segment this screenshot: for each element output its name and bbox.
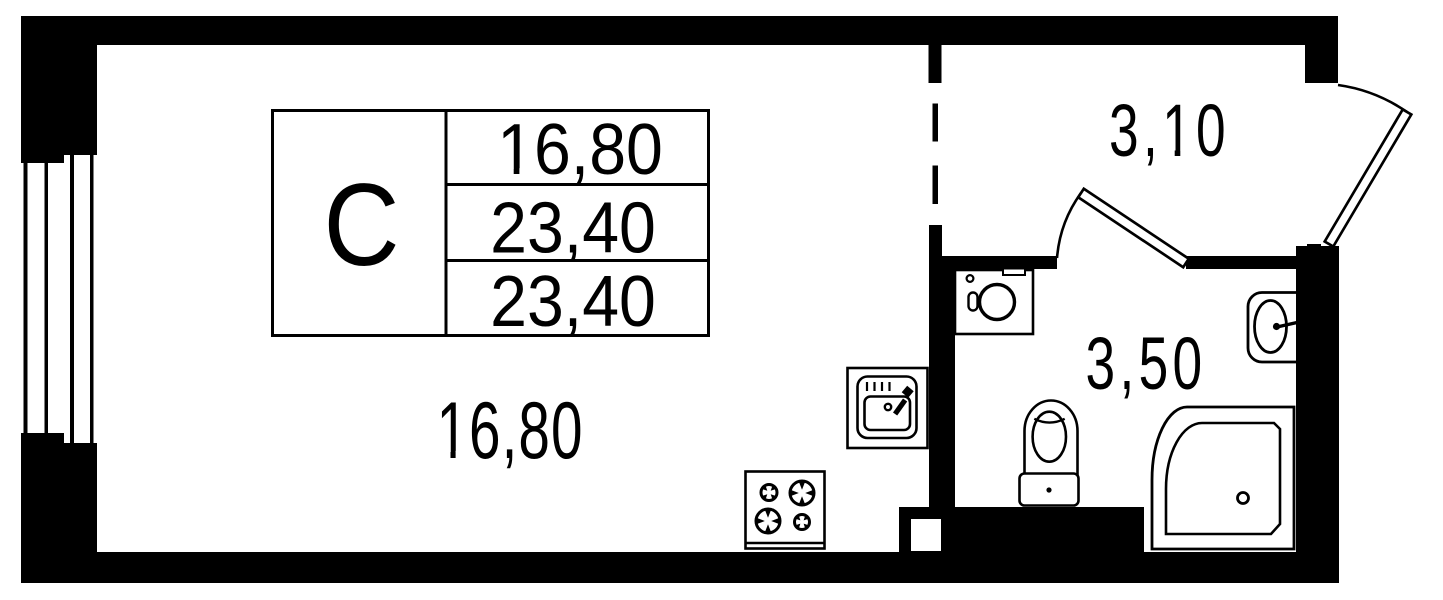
svg-text:16,80: 16,80 bbox=[436, 385, 583, 475]
svg-text:23,40: 23,40 bbox=[490, 187, 656, 268]
svg-text:16,80: 16,80 bbox=[497, 108, 663, 189]
svg-text:23,40: 23,40 bbox=[490, 260, 656, 341]
svg-text:3,50: 3,50 bbox=[1086, 322, 1207, 405]
svg-text:3,10: 3,10 bbox=[1109, 89, 1230, 172]
svg-text:С: С bbox=[323, 159, 399, 290]
